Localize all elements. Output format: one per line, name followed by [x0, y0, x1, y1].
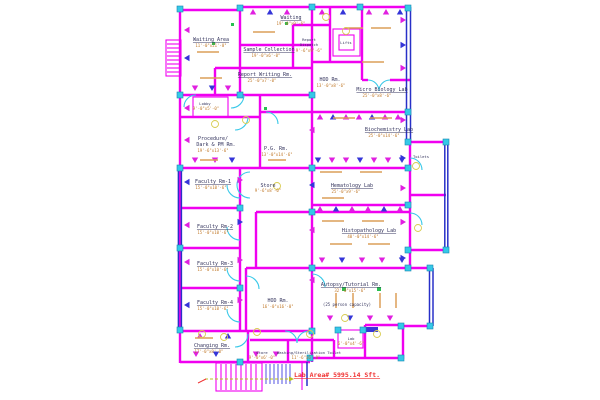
- light-fixtures: [199, 14, 422, 341]
- room-dim-faculty-1: 15'-0"x10'-6": [195, 185, 226, 190]
- room-dim-lab-small: 6'-0"x4'-6": [338, 341, 365, 346]
- lab-area-note: Lab Area# 5995.14 Sft.: [294, 371, 380, 379]
- floor-plan-drawing: Waiting Area 11'-0"x21'-0" Waiting 19'-0…: [0, 0, 600, 400]
- room-dim-faculty-3: 15'-0"x10'-6": [197, 267, 228, 272]
- room-dim-histopathology: 40'-0"x14'-6": [347, 234, 378, 239]
- room-dim-waiting-area: 11'-0"x21'-0": [195, 43, 226, 48]
- room-dim-hod-top: 13'-0"x8'-6": [317, 83, 346, 88]
- room-label-lifts: Lifts: [340, 40, 351, 45]
- room-dim-store-mid: 9'-6"x8'-0": [255, 188, 282, 193]
- room-dim-sample-collection: 19'-0"x6'-0": [252, 53, 281, 58]
- room-dim-report-writing: 25'-0"x7'-0": [248, 78, 277, 83]
- room-label-toilets: Toilets: [413, 154, 429, 159]
- room-label-report-dispatch-2: Dispatch: [300, 42, 318, 47]
- window-block: [365, 327, 378, 332]
- room-dim-biochemistry: 25'-0"x14'-6": [368, 133, 399, 138]
- room-dim-faculty-2: 15'-0"x10'-6": [197, 230, 228, 235]
- room-dim-procedure: 19'-6"x13'-6": [197, 148, 228, 153]
- floor-plan-canvas: Waiting Area 11'-0"x21'-0" Waiting 19'-0…: [0, 0, 600, 400]
- room-dim-waiting: 19'-0"x9'-6": [277, 21, 306, 26]
- room-dim-faculty-4: 15'-0"x10'-6": [197, 306, 228, 311]
- room-dim-changing: 17'-0"x8'-0": [195, 349, 224, 354]
- room-dim-autopsy: 32'-0"x15'-6": [334, 288, 365, 293]
- room-dim-micro-biology: 25'-0"x8'-6": [363, 93, 392, 98]
- room-dim-report-dispatch: 9'-6"x9'-6": [296, 48, 323, 53]
- room-capacity-autopsy: (25 person capacity): [323, 302, 371, 307]
- room-dim-lobby: 9'-0"x5'-0": [193, 106, 220, 111]
- room-dim-pg-rm: 13'-0"x14'-6": [261, 152, 292, 157]
- room-dim-hematology: 25'-0"x9'-6": [332, 189, 361, 194]
- room-dim-washing: 11'-6"x6'-0": [292, 355, 321, 360]
- stairs-bottom: [198, 363, 294, 391]
- room-dim-hod-bottom: 16'-0"x16'-0": [262, 304, 293, 309]
- room-dim-store-bottom: 9'-0"x6'-0": [249, 355, 276, 360]
- red-mark: [198, 379, 206, 383]
- stairs-left: [166, 40, 181, 76]
